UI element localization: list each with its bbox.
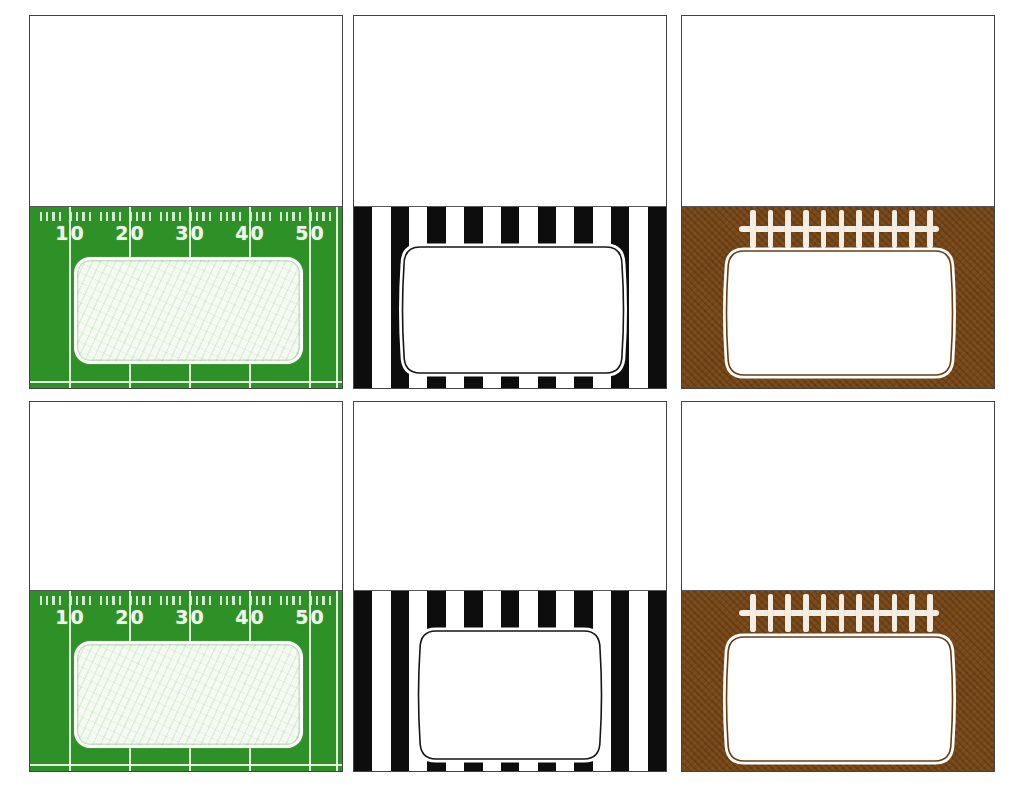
field-hash-tick — [286, 596, 288, 605]
field-yard-number: 30 — [175, 606, 205, 628]
name-label-frame — [354, 207, 666, 388]
field-hash-tick — [166, 596, 168, 605]
label-frame-outline — [727, 251, 953, 375]
field-hash-tick — [82, 596, 84, 605]
field-hash-tick — [130, 212, 132, 221]
field-hash-tick — [256, 596, 258, 605]
field-hash-tick — [292, 212, 294, 221]
field-yard-number: 10 — [55, 222, 85, 244]
field-yard-number: 30 — [175, 222, 205, 244]
field-hash-tick — [322, 212, 324, 221]
field-hash-tick — [220, 596, 222, 605]
field-bottom-sideline — [30, 381, 342, 383]
field-hash-tick — [310, 212, 312, 221]
card-sheet: 10203040501020304050 — [0, 0, 1024, 791]
field-hash-tick — [112, 212, 114, 221]
field-hash-tick — [142, 596, 144, 605]
field-right-sideline — [336, 591, 338, 771]
field-hash-tick — [280, 596, 282, 605]
field-hash-tick — [239, 212, 241, 221]
place-card-football — [681, 401, 995, 772]
field-hash-tick — [82, 212, 84, 221]
field-hash-tick — [160, 596, 162, 605]
card-blank-fold-top — [30, 402, 342, 590]
field-hash-tick — [292, 596, 294, 605]
field-hash-tick — [89, 212, 91, 221]
field-hash-tick — [46, 596, 48, 605]
field-hash-tick — [100, 596, 102, 605]
label-frame-outline — [419, 631, 602, 759]
field-hash-tick — [52, 212, 54, 221]
field-yard-number: 40 — [235, 222, 265, 244]
card-blank-fold-top — [682, 16, 994, 206]
field-hash-tick — [89, 596, 91, 605]
field-hash-tick — [40, 212, 42, 221]
card-front-football — [682, 206, 994, 388]
field-hash-tick — [280, 212, 282, 221]
field-hash-tick — [226, 596, 228, 605]
card-blank-fold-top — [354, 16, 666, 206]
field-hash-tick — [196, 596, 198, 605]
field-hash-tick — [106, 596, 108, 605]
field-hash-tick — [209, 212, 211, 221]
field-hash-tick — [269, 212, 271, 221]
field-hash-tick — [149, 212, 151, 221]
field-hash-tick — [256, 212, 258, 221]
field-hash-tick — [196, 212, 198, 221]
field-yard-number: 20 — [115, 222, 145, 244]
field-hash-tick — [299, 596, 301, 605]
field-hash-tick — [70, 212, 72, 221]
field-hash-tick — [250, 596, 252, 605]
field-hash-tick — [46, 212, 48, 221]
field-hash-tick — [119, 212, 121, 221]
field-hash-tick — [220, 212, 222, 221]
name-label-box — [74, 257, 303, 364]
field-yard-number: 10 — [55, 606, 85, 628]
field-yard-number: 50 — [295, 606, 325, 628]
name-label-box — [74, 641, 303, 748]
field-hash-tick — [226, 212, 228, 221]
field-hash-tick — [160, 212, 162, 221]
field-hash-tick — [232, 212, 234, 221]
field-hash-tick — [142, 212, 144, 221]
field-hash-tick — [179, 212, 181, 221]
card-front-referee — [354, 206, 666, 388]
field-hash-tick — [100, 212, 102, 221]
name-label-frame — [682, 591, 994, 771]
field-hash-tick — [250, 212, 252, 221]
field-hash-tick — [262, 596, 264, 605]
field-hash-tick — [286, 212, 288, 221]
field-hash-tick — [172, 596, 174, 605]
field-hash-tick — [329, 596, 331, 605]
field-hash-tick — [316, 212, 318, 221]
place-card-referee — [353, 401, 667, 772]
field-hash-tick — [269, 596, 271, 605]
field-hash-tick — [119, 596, 121, 605]
field-hash-tick — [76, 596, 78, 605]
field-hash-tick — [179, 596, 181, 605]
field-hash-tick — [136, 596, 138, 605]
field-hash-tick — [329, 212, 331, 221]
field-hash-tick — [190, 212, 192, 221]
field-hash-tick — [172, 212, 174, 221]
card-front-referee — [354, 590, 666, 771]
place-card-referee — [353, 15, 667, 389]
label-frame-outline — [727, 637, 953, 761]
field-hash-tick — [40, 596, 42, 605]
name-label-frame — [354, 591, 666, 771]
field-hash-tick — [316, 596, 318, 605]
card-front-field: 1020304050 — [30, 206, 342, 388]
field-hash-tick — [202, 212, 204, 221]
field-hash-tick — [202, 596, 204, 605]
card-front-field: 1020304050 — [30, 590, 342, 771]
field-hash-tick — [166, 212, 168, 221]
field-right-sideline — [336, 207, 338, 388]
field-hash-tick — [299, 212, 301, 221]
field-hash-tick — [310, 596, 312, 605]
field-bottom-sideline — [30, 764, 342, 766]
card-blank-fold-top — [354, 402, 666, 590]
field-hash-tick — [106, 212, 108, 221]
field-hash-tick — [190, 596, 192, 605]
field-yard-number: 50 — [295, 222, 325, 244]
place-card-field: 1020304050 — [29, 401, 343, 772]
card-front-football — [682, 590, 994, 771]
field-hash-tick — [52, 596, 54, 605]
place-card-football — [681, 15, 995, 389]
field-yard-number: 40 — [235, 606, 265, 628]
field-hash-tick — [239, 596, 241, 605]
field-hash-tick — [70, 596, 72, 605]
name-label-frame — [682, 207, 994, 388]
label-frame-outline — [403, 247, 624, 373]
field-hash-tick — [136, 212, 138, 221]
field-hash-tick — [322, 596, 324, 605]
field-hash-tick — [149, 596, 151, 605]
field-hash-tick — [130, 596, 132, 605]
card-blank-fold-top — [682, 402, 994, 590]
field-hash-tick — [76, 212, 78, 221]
card-blank-fold-top — [30, 16, 342, 206]
place-card-field: 1020304050 — [29, 15, 343, 389]
field-hash-tick — [232, 596, 234, 605]
field-hash-tick — [209, 596, 211, 605]
field-hash-tick — [59, 212, 61, 221]
field-yard-number: 20 — [115, 606, 145, 628]
field-hash-tick — [262, 212, 264, 221]
field-hash-tick — [112, 596, 114, 605]
field-hash-tick — [59, 596, 61, 605]
